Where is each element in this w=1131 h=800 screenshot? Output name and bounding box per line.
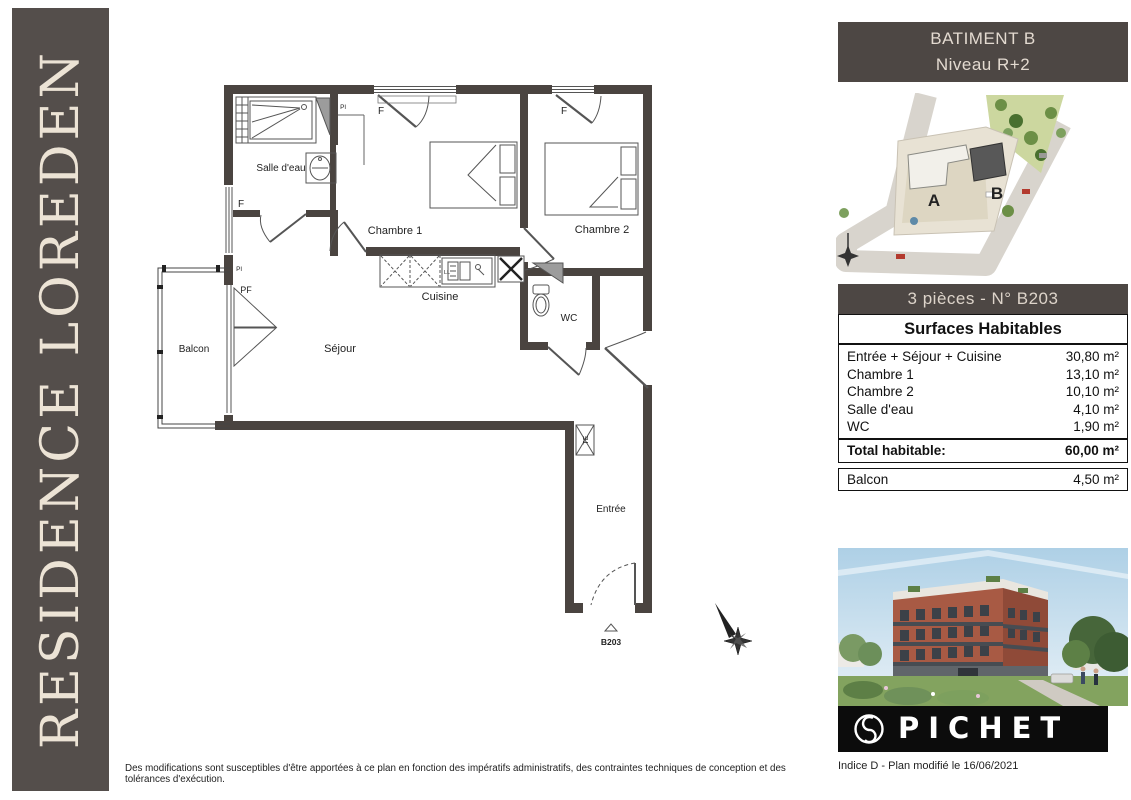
duct-shaft-kitchen <box>498 256 524 282</box>
window-label-1: F <box>378 106 384 117</box>
window-bedroom2 <box>552 85 601 123</box>
revision-note: Indice D - Plan modifié le 16/06/2021 <box>838 760 1018 772</box>
unit-header: 3 pièces - N° B203 <box>838 284 1128 314</box>
room-label-wc: WC <box>561 313 578 324</box>
plan-sheet: RESIDENCE LOREDEN <box>0 0 1131 800</box>
residence-banner: RESIDENCE LOREDEN <box>12 8 109 791</box>
room-label-bathroom: Salle d'eau <box>256 163 305 174</box>
building-name: BATIMENT B <box>838 29 1128 49</box>
render-building <box>893 576 1048 680</box>
window-label-2: F <box>561 106 567 117</box>
closet-label-1: Pl <box>340 104 346 111</box>
building-level: Niveau R+2 <box>838 55 1128 75</box>
north-compass-icon <box>715 603 752 655</box>
french-door <box>224 285 276 415</box>
shower-icon <box>236 97 316 143</box>
entry-marker <box>605 624 617 631</box>
site-label-a: A <box>928 191 940 210</box>
table-row: Salle d'eau4,10 m² <box>839 401 1127 419</box>
building-render <box>838 548 1128 706</box>
site-label-b: B <box>991 184 1003 203</box>
table-total-row: Total habitable:60,00 m² <box>839 438 1127 463</box>
residence-title: RESIDENCE LOREDEN <box>31 49 91 749</box>
room-label-entry: Entrée <box>596 504 626 515</box>
room-label-balcony: Balcon <box>179 344 210 355</box>
bed-bedroom2-icon <box>545 143 638 215</box>
floor-plan: 0 1 2m Salle d'eau Chambre 1 Chambre 2 C… <box>148 75 798 665</box>
washer-label: LL <box>444 270 450 276</box>
bed-bedroom1-icon <box>430 142 517 208</box>
brand-logo-icon <box>852 712 886 746</box>
kitchen-counter-icon <box>380 255 495 287</box>
room-label-kitchen: Cuisine <box>422 291 459 303</box>
brand-wordmark: PICHET <box>898 711 1069 745</box>
table-row: Entrée + Séjour + Cuisine30,80 m² <box>839 345 1127 366</box>
surfaces-title: Surfaces Habitables <box>839 315 1127 345</box>
site-building-b <box>970 143 1006 181</box>
unit-number-label: B203 <box>601 637 622 647</box>
closet-lines <box>338 115 364 165</box>
brand-logo: PICHET <box>838 706 1108 752</box>
footer-disclaimer: Des modifications sont susceptibles d'êt… <box>125 763 805 785</box>
building-header: BATIMENT B Niveau R+2 <box>838 22 1128 82</box>
room-label-living: Séjour <box>324 343 356 355</box>
window-label-3: F <box>238 199 244 210</box>
table-row: Chambre 113,10 m² <box>839 366 1127 384</box>
window-living-left <box>224 185 233 255</box>
window-bedroom1 <box>374 85 456 127</box>
closet-label-2: Pl <box>236 266 242 273</box>
surfaces-table: Surfaces Habitables Entrée + Séjour + Cu… <box>838 314 1128 463</box>
table-row: Chambre 210,10 m² <box>839 383 1127 401</box>
duct-shaft-bathroom <box>316 98 330 135</box>
toilet-icon <box>533 285 549 316</box>
technical-label: TE <box>583 435 590 444</box>
table-row: WC1,90 m² <box>839 418 1127 436</box>
balcony-row: Balcon4,50 m² <box>838 468 1128 491</box>
room-label-bedroom1: Chambre 1 <box>368 225 422 237</box>
room-label-bedroom2: Chambre 2 <box>575 224 629 236</box>
french-door-label: PF <box>240 285 252 295</box>
site-plan: A B <box>836 93 1130 283</box>
